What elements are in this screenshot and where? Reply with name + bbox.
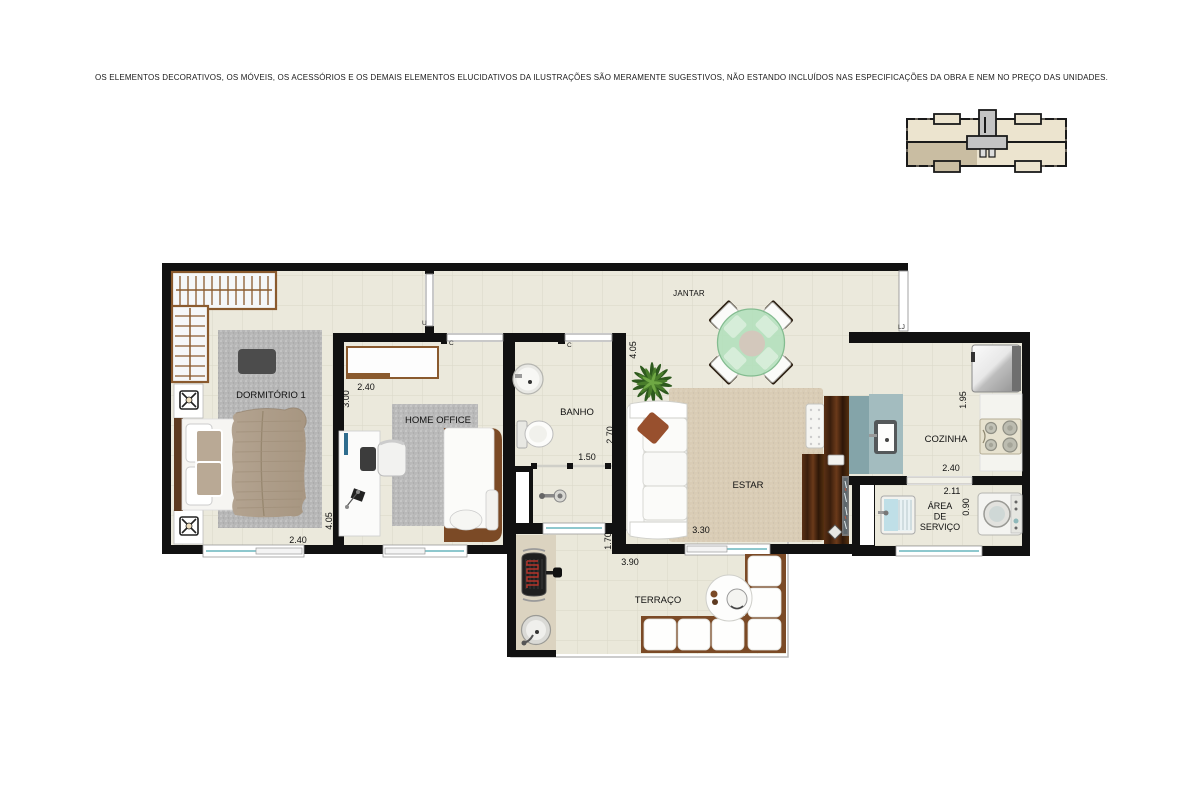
svg-text:COZINHA: COZINHA	[925, 434, 968, 445]
svg-text:DE: DE	[934, 512, 947, 522]
svg-text:0.90: 0.90	[961, 498, 971, 516]
svg-text:4.05: 4.05	[324, 512, 334, 530]
svg-text:DORMITÓRIO 1: DORMITÓRIO 1	[236, 390, 306, 401]
svg-text:4.05: 4.05	[628, 341, 638, 359]
svg-text:TERRAÇO: TERRAÇO	[635, 595, 681, 606]
svg-text:2.40: 2.40	[357, 382, 375, 392]
svg-text:C: C	[449, 340, 454, 347]
svg-text:2.40: 2.40	[942, 463, 960, 473]
svg-text:BANHO: BANHO	[560, 407, 594, 418]
svg-text:SERVIÇO: SERVIÇO	[920, 522, 960, 532]
svg-text:3.30: 3.30	[692, 525, 710, 535]
svg-text:ESTAR: ESTAR	[733, 480, 764, 491]
svg-text:ÁREA: ÁREA	[928, 501, 953, 511]
svg-text:C: C	[567, 342, 572, 349]
svg-text:2.11: 2.11	[944, 486, 961, 496]
svg-text:1.50: 1.50	[578, 452, 596, 462]
svg-text:3.00: 3.00	[341, 390, 351, 408]
svg-text:OS ELEMENTOS DECORATIVOS, OS M: OS ELEMENTOS DECORATIVOS, OS MÓVEIS, OS …	[95, 73, 1108, 82]
svg-text:JANTAR: JANTAR	[673, 289, 705, 298]
svg-text:2.70: 2.70	[605, 426, 615, 444]
svg-text:2.40: 2.40	[289, 535, 307, 545]
svg-text:HOME OFFICE: HOME OFFICE	[405, 415, 471, 426]
svg-text:LJ: LJ	[898, 324, 905, 331]
svg-text:1.70: 1.70	[603, 532, 613, 550]
svg-text:3.90: 3.90	[621, 557, 639, 567]
svg-text:1.95: 1.95	[958, 391, 968, 409]
svg-text:U: U	[422, 320, 427, 327]
